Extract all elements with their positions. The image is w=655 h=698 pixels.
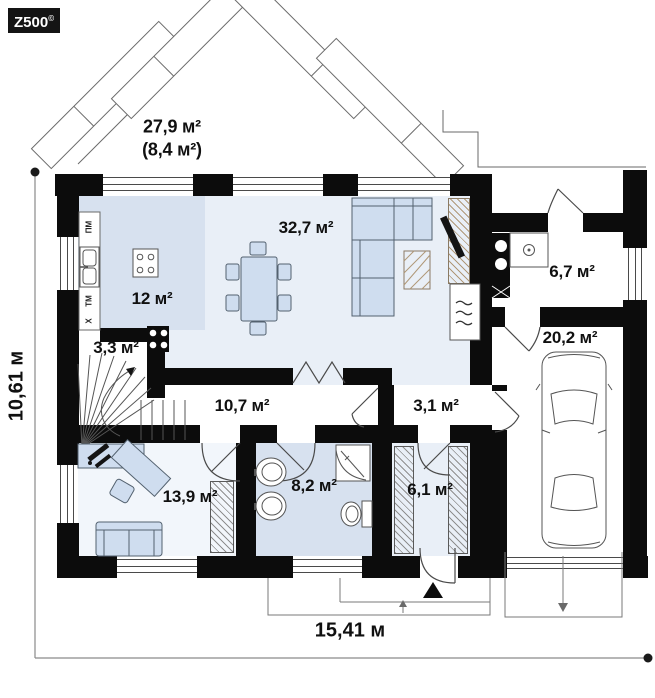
room-label-hall: 10,7 м² [215, 396, 270, 416]
car [536, 352, 612, 548]
terrace-area-label: 27,9 м² [143, 117, 201, 138]
office-chair [109, 478, 135, 504]
entrance-arrow [423, 582, 443, 598]
room-label-utility: 6,7 м² [549, 262, 594, 282]
room-label-stairs: 3,3 м² [93, 338, 138, 358]
appliance-label-washing-machine: ТМ [85, 295, 94, 307]
room-label-living: 32,7 м² [279, 218, 334, 238]
brand-text: Z500 [14, 14, 48, 31]
terrace-area-alt-label: (8,4 м²) [142, 140, 202, 161]
dimension-label-height: 10,61 м [6, 351, 29, 421]
corner-stove-icon [147, 326, 169, 352]
room-label-office: 13,9 м² [163, 487, 218, 507]
kitchen-sink-icon [80, 247, 99, 287]
double-door [293, 362, 345, 383]
brand-logo: Z500© [8, 8, 60, 33]
stove-icon [133, 249, 158, 277]
room-label-passage: 3,1 м² [413, 396, 458, 416]
dining-table [226, 242, 291, 335]
office-sofa [96, 522, 162, 556]
room-label-garage: 20,2 м² [543, 328, 598, 348]
sink-icon [254, 458, 286, 520]
copyright-mark: © [48, 14, 54, 23]
dimension-label-width: 15,41 м [315, 620, 385, 643]
garage-door [505, 552, 622, 617]
desk [78, 440, 171, 504]
shower-icon [336, 445, 370, 481]
appliance-label-dishwasher: ПМ [85, 221, 94, 233]
appliance-label-fridge: Х [85, 318, 94, 323]
floor-plan: Z500© 27,9 м² (8,4 м²) 32,7 м² 12 м² 3,3… [0, 0, 655, 698]
room-label-vestibule: 6,1 м² [407, 480, 452, 500]
room-label-kitchen: 12 м² [132, 289, 173, 309]
boiler-icon [492, 233, 510, 298]
rug [404, 251, 430, 289]
utility-counter [510, 233, 548, 267]
porch [268, 578, 490, 615]
fireplace-icon [440, 216, 480, 340]
room-label-bathroom: 8,2 м² [291, 476, 336, 496]
staircase [78, 353, 185, 448]
toilet-icon [341, 501, 372, 527]
